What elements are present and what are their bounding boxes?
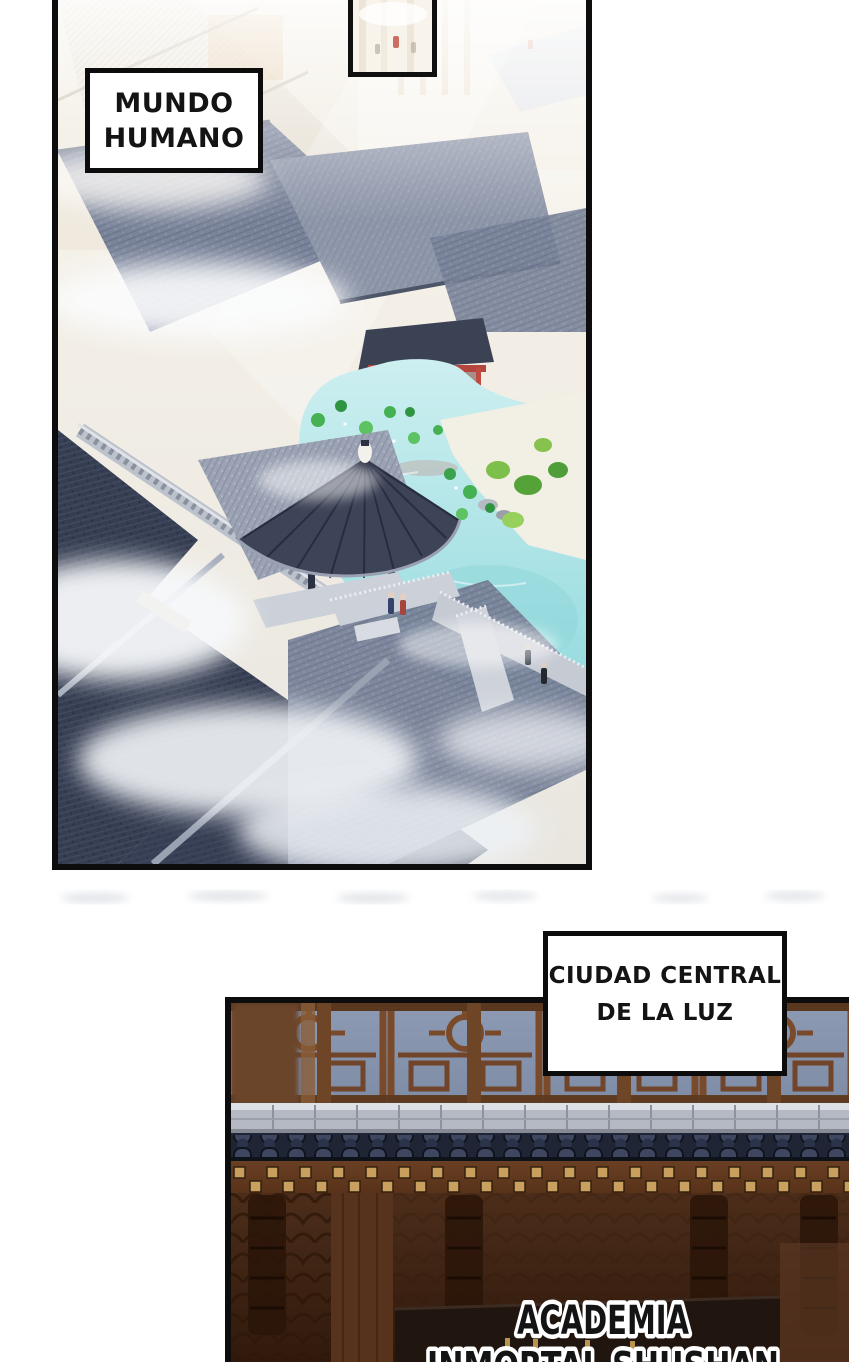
studded-beam xyxy=(231,1161,849,1193)
caption-line: DE LA LUZ xyxy=(597,995,734,1032)
inset-artwork xyxy=(353,0,432,72)
caption-line: HUMANO xyxy=(104,121,245,156)
human-world-caption-box: MUNDO HUMANO xyxy=(85,68,263,173)
central-city-caption-box: CIUDAD CENTRAL DE LA LUZ xyxy=(543,931,787,1076)
gutter-mist xyxy=(0,880,849,920)
caption-line: MUNDO xyxy=(114,86,233,121)
caption-line: CIUDAD CENTRAL xyxy=(549,958,782,995)
academy-sign-line1: ACADEMIA xyxy=(517,1298,689,1344)
distant-figure xyxy=(411,42,416,53)
distant-figure-red xyxy=(393,36,399,48)
comic-page: MUNDO HUMANO xyxy=(0,0,849,1362)
roof-tile-eave xyxy=(231,1133,849,1161)
distant-figure xyxy=(375,44,380,54)
stone-ledge xyxy=(231,1103,849,1133)
academy-sign-line2: INMORTAL SHUSHAN xyxy=(427,1344,779,1362)
inset-panel xyxy=(348,0,437,77)
academy-sign-caption: ACADEMIA INMORTAL SHUSHAN xyxy=(378,1290,828,1362)
